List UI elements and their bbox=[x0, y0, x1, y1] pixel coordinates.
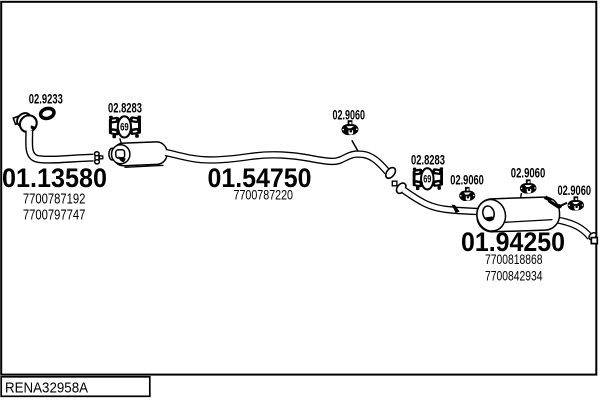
svg-text:02.9233: 02.9233 bbox=[29, 90, 63, 106]
svg-text:02.8283: 02.8283 bbox=[411, 151, 445, 167]
svg-text:7700787192: 7700787192 bbox=[23, 191, 86, 208]
svg-text:RENA32958A: RENA32958A bbox=[5, 381, 88, 397]
svg-text:7700797747: 7700797747 bbox=[23, 207, 86, 224]
svg-text:01.13580: 01.13580 bbox=[2, 163, 107, 193]
svg-text:02.8283: 02.8283 bbox=[108, 100, 142, 116]
svg-text:02.9060: 02.9060 bbox=[511, 164, 546, 180]
svg-text:02.9060: 02.9060 bbox=[450, 172, 484, 188]
svg-text:02.9060: 02.9060 bbox=[558, 182, 592, 198]
svg-text:7700787220: 7700787220 bbox=[234, 186, 294, 202]
svg-text:02.9060: 02.9060 bbox=[333, 107, 366, 123]
svg-text:7700818868: 7700818868 bbox=[485, 251, 543, 267]
svg-text:7700842934: 7700842934 bbox=[485, 267, 543, 283]
